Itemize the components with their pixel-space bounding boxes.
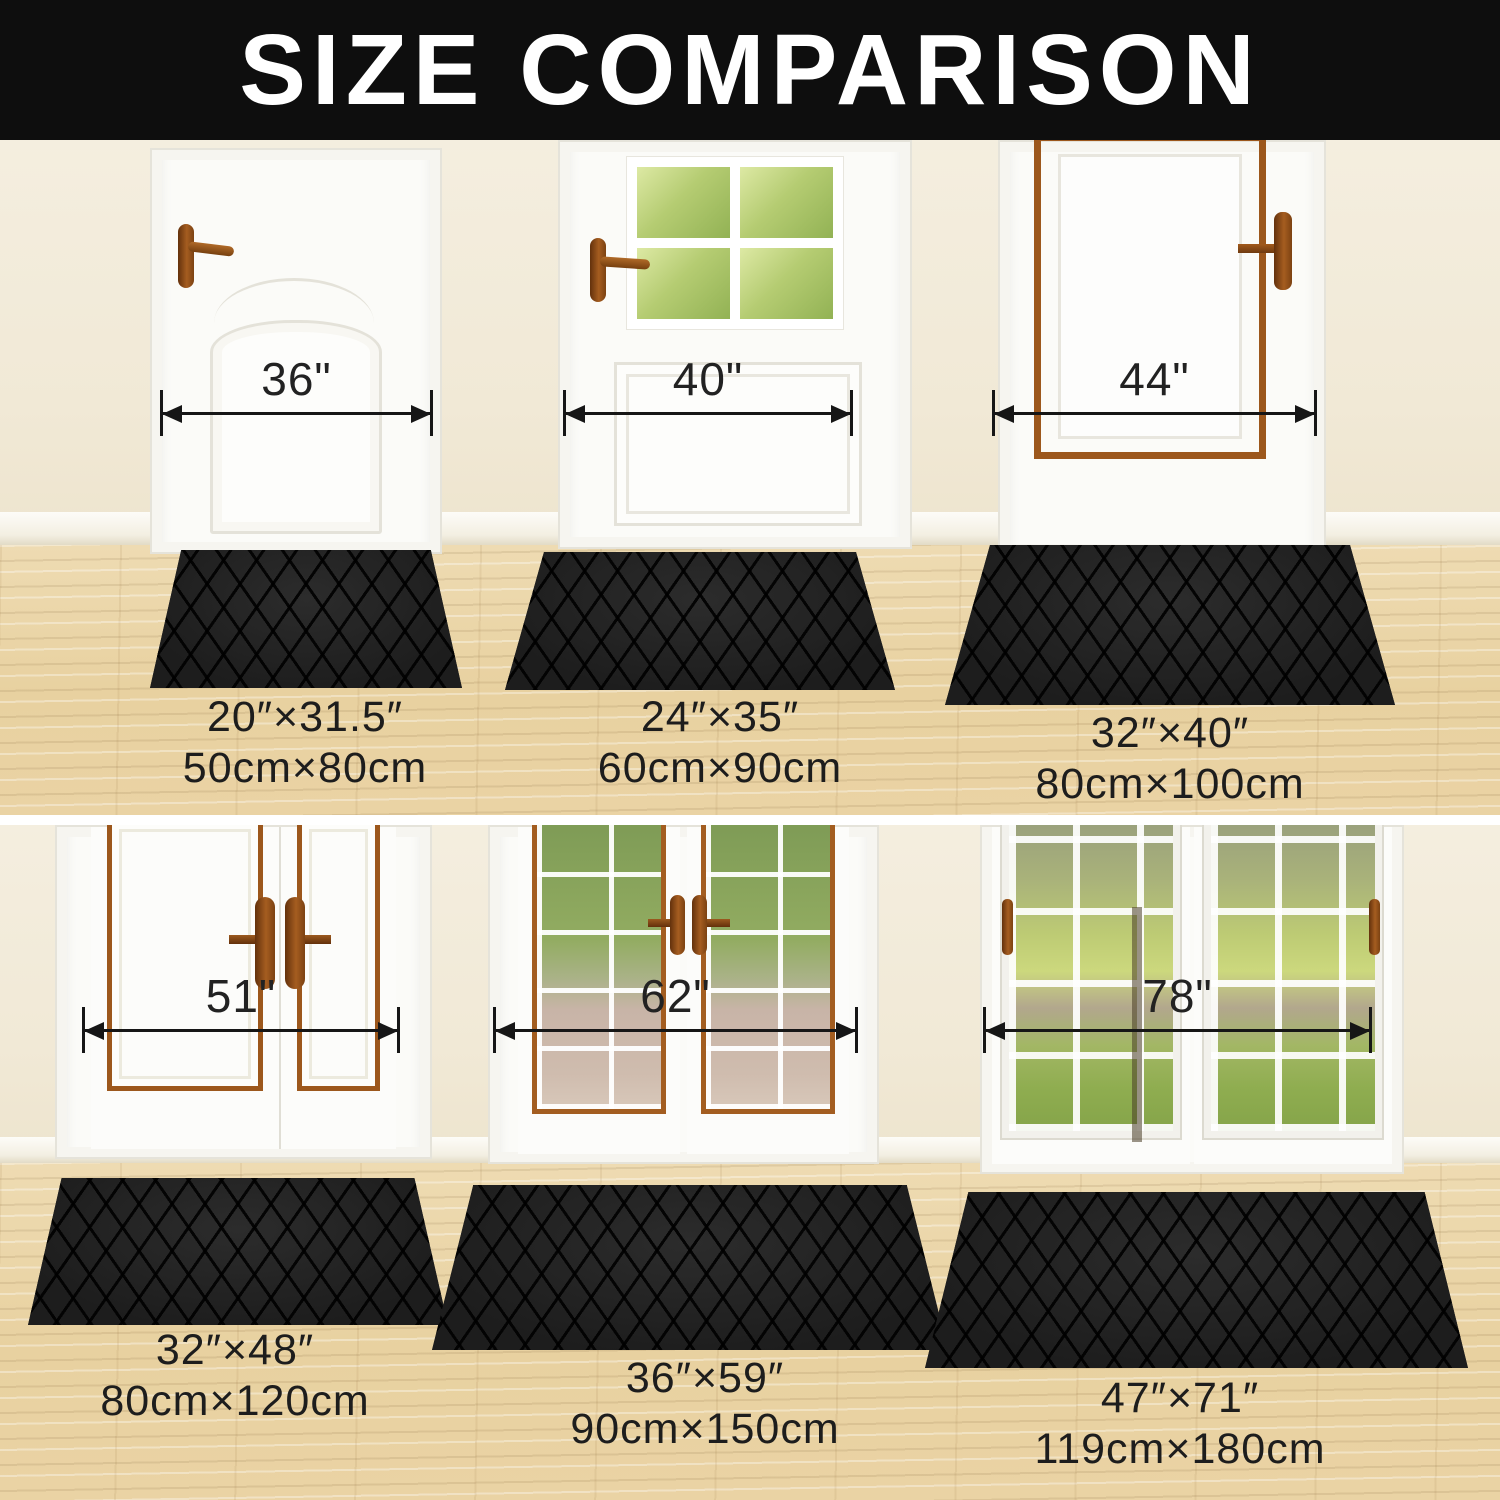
door-width-label: 78" [983, 961, 1372, 1023]
arrow-head-right-icon [1350, 1022, 1370, 1040]
title-banner: SIZE COMPARISON [0, 0, 1500, 140]
arrow-line [82, 1029, 400, 1032]
arrow-line [992, 412, 1317, 415]
window-pane [740, 248, 833, 319]
mat-size-cm: 60cm×90cm [550, 743, 890, 794]
door-handle-lever [600, 256, 651, 269]
door-width-label: 40" [563, 344, 853, 406]
mat-size-inches: 36″×59″ [515, 1353, 895, 1404]
mat-size-inches: 32″×48″ [55, 1325, 415, 1376]
door-width-label: 62" [493, 961, 858, 1023]
arrow-line [493, 1029, 858, 1032]
door-handle [590, 238, 606, 302]
doormat [925, 1192, 1468, 1368]
arrow-head-left-icon [162, 405, 182, 423]
mat-size-label: 32″×40″ 80cm×100cm [980, 708, 1360, 809]
mat-size-inches: 24″×35″ [550, 692, 890, 743]
arrow-head-left-icon [495, 1022, 515, 1040]
mat-size-cm: 80cm×120cm [55, 1376, 415, 1427]
mat-size-label: 20″×31.5″ 50cm×80cm [135, 692, 475, 793]
arrow-head-left-icon [84, 1022, 104, 1040]
door-handle [178, 224, 194, 288]
arrow-head-right-icon [411, 405, 431, 423]
door-width-label: 44" [992, 344, 1317, 406]
door-handle-spindle [706, 919, 730, 927]
arrow-head-right-icon [836, 1022, 856, 1040]
window-pane [740, 167, 833, 238]
door-width-label: 51" [82, 961, 400, 1023]
arrow-line [160, 412, 433, 415]
width-arrow: 40" [563, 344, 853, 444]
mat-size-cm: 90cm×150cm [515, 1404, 895, 1455]
door-handle [1274, 212, 1292, 290]
arrow-head-left-icon [994, 405, 1014, 423]
doormat [432, 1185, 948, 1350]
doormat [150, 550, 462, 688]
doormat [945, 545, 1395, 705]
arrow-head-right-icon [378, 1022, 398, 1040]
door-handle-spindle [648, 919, 672, 927]
single-doors-scene: 36" 40" 44" 20″×31.5″ 50 [0, 140, 1500, 815]
width-arrow: 36" [160, 344, 433, 444]
doormat [28, 1178, 448, 1325]
width-arrow: 78" [983, 961, 1372, 1061]
mat-size-cm: 50cm×80cm [135, 743, 475, 794]
double-doors-scene: 51" 62" 78" 32″×48″ 80cm [0, 825, 1500, 1500]
mat-size-inches: 32″×40″ [980, 708, 1360, 759]
page-title: SIZE COMPARISON [239, 20, 1261, 120]
door-window [626, 156, 844, 330]
door-width-label: 36" [160, 344, 433, 406]
mat-size-label: 47″×71″ 119cm×180cm [965, 1373, 1395, 1474]
door-handle-spindle [1238, 244, 1274, 253]
mat-size-inches: 47″×71″ [965, 1373, 1395, 1424]
width-arrow: 62" [493, 961, 858, 1061]
mat-size-inches: 20″×31.5″ [135, 692, 475, 743]
section-divider [0, 815, 1500, 825]
door-handle-spindle [229, 935, 257, 944]
doormat [505, 552, 895, 690]
mat-size-label: 32″×48″ 80cm×120cm [55, 1325, 415, 1426]
door-handle-spindle [303, 935, 331, 944]
arrow-line [563, 412, 853, 415]
mat-size-cm: 119cm×180cm [965, 1424, 1395, 1475]
width-arrow: 51" [82, 961, 400, 1061]
arrow-line [983, 1029, 1372, 1032]
arrow-head-left-icon [985, 1022, 1005, 1040]
window-pane [637, 167, 730, 238]
door-handle [670, 895, 685, 955]
door-handle [1002, 899, 1013, 955]
arrow-head-right-icon [1295, 405, 1315, 423]
window-pane [637, 248, 730, 319]
door-handle-lever [188, 241, 235, 257]
mat-size-label: 36″×59″ 90cm×150cm [515, 1353, 895, 1454]
door-handle [1369, 899, 1380, 955]
arrow-head-left-icon [565, 405, 585, 423]
width-arrow: 44" [992, 344, 1317, 444]
door-panel-arc [214, 278, 374, 323]
arrow-head-right-icon [831, 405, 851, 423]
mat-size-label: 24″×35″ 60cm×90cm [550, 692, 890, 793]
door-handle [692, 895, 707, 955]
mat-size-cm: 80cm×100cm [980, 759, 1360, 810]
